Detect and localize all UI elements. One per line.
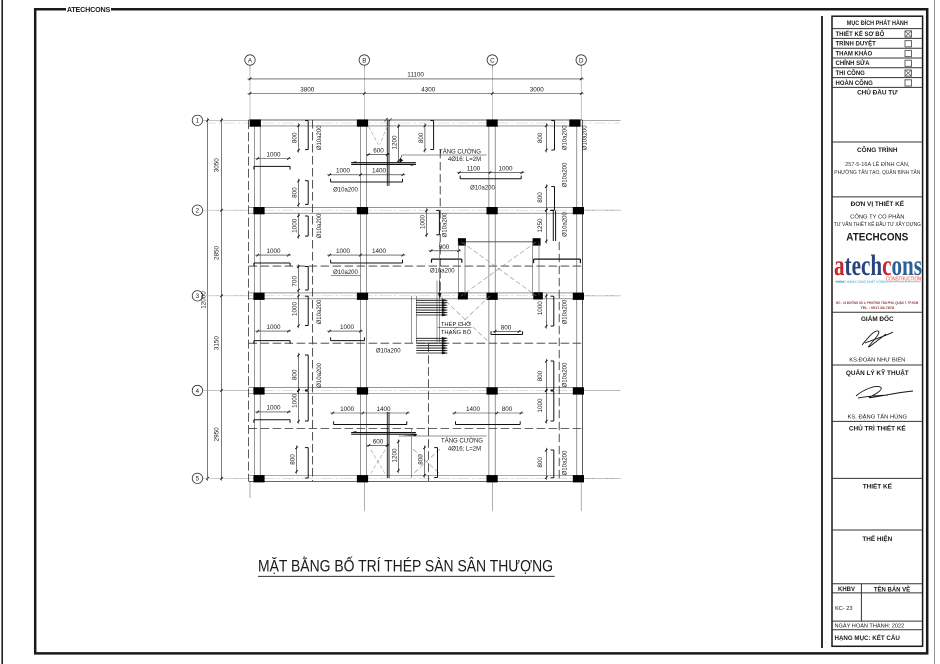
svg-text:Ø10a200: Ø10a200	[563, 125, 569, 150]
svg-text:THAM KHẢO: THAM KHẢO	[836, 50, 873, 57]
svg-text:KS.ĐOÀN NHƯ BIỂN: KS.ĐOÀN NHƯ BIỂN	[849, 357, 905, 364]
svg-text:Ø10a200: Ø10a200	[333, 187, 358, 193]
svg-text:Ø10a200: Ø10a200	[430, 268, 455, 274]
svg-text:800: 800	[292, 187, 299, 198]
svg-text:4Ø16: L=2M: 4Ø16: L=2M	[448, 157, 481, 163]
svg-text:1000: 1000	[537, 301, 544, 316]
svg-text:1400: 1400	[376, 406, 391, 413]
svg-text:TĂNG CƯỜNG: TĂNG CƯỜNG	[441, 437, 483, 444]
svg-text:800: 800	[292, 369, 299, 380]
svg-text:800: 800	[418, 132, 425, 143]
svg-text:D: D	[579, 57, 584, 64]
svg-text:THỂ HIỆN: THỂ HIỆN	[862, 534, 892, 543]
svg-text:800: 800	[290, 454, 297, 465]
svg-text:1: 1	[196, 118, 200, 125]
svg-text:1000: 1000	[292, 218, 299, 233]
svg-text:MẶT BẰNG BỐ TRÍ THÉP SÀN SÂN T: MẶT BẰNG BỐ TRÍ THÉP SÀN SÂN THƯỢNG	[258, 556, 553, 576]
svg-text:Ø10a200: Ø10a200	[376, 349, 401, 355]
svg-text:1000: 1000	[340, 324, 355, 331]
svg-text:3150: 3150	[213, 336, 220, 351]
svg-text:4300: 4300	[421, 86, 436, 93]
svg-text:1000: 1000	[266, 248, 281, 255]
svg-text:TÊN BẢN VẼ: TÊN BẢN VẼ	[874, 586, 910, 594]
svg-text:PHƯỜNG TÂN TẠO, QUẬN BÌNH TÂN: PHƯỜNG TÂN TẠO, QUẬN BÌNH TÂN	[834, 169, 920, 176]
svg-text:700: 700	[292, 276, 299, 287]
svg-text:Ø10a200: Ø10a200	[470, 186, 495, 192]
svg-text:800: 800	[501, 324, 512, 331]
svg-text:2950: 2950	[213, 427, 220, 442]
svg-text:1000: 1000	[537, 398, 544, 413]
svg-text:1000: 1000	[266, 151, 281, 158]
svg-text:800: 800	[502, 406, 513, 413]
svg-text:3800: 3800	[300, 86, 315, 93]
svg-text:Ø10a200: Ø10a200	[563, 362, 569, 387]
svg-text:C: C	[490, 57, 495, 64]
svg-text:KHBV: KHBV	[838, 587, 855, 593]
svg-text:ĐỒNG HÀNH CÙNG KHÁT VỌNG: ĐỒNG HÀNH CÙNG KHÁT VỌNG	[836, 279, 886, 284]
svg-text:1000: 1000	[292, 302, 299, 317]
svg-text:1250: 1250	[537, 218, 544, 233]
svg-text:TEL : 0917.68.7878: TEL : 0917.68.7878	[860, 306, 894, 310]
svg-text:600: 600	[373, 438, 384, 445]
svg-text:1000: 1000	[266, 324, 281, 331]
svg-text:ĐC : 16 ĐƯỜNG SỐ 4, PHƯỜNG TÂN: ĐC : 16 ĐƯỜNG SỐ 4, PHƯỜNG TÂN PHÚ, QUẬN…	[836, 300, 918, 305]
svg-text:12000: 12000	[201, 291, 208, 309]
svg-text:2850: 2850	[213, 246, 220, 261]
svg-text:Ø10a200: Ø10a200	[563, 162, 569, 187]
svg-text:3050: 3050	[213, 158, 220, 173]
svg-text:CONSTRUCTION: CONSTRUCTION	[886, 276, 921, 282]
svg-text:1000: 1000	[292, 393, 299, 408]
svg-text:Ø10a200: Ø10a200	[317, 362, 323, 387]
svg-text:Ø10a200: Ø10a200	[333, 270, 358, 276]
svg-text:QUẢN LÝ KỸ THUẬT: QUẢN LÝ KỸ THUẬT	[846, 368, 909, 377]
svg-text:TRÌNH DUYỆT: TRÌNH DUYỆT	[836, 40, 877, 48]
svg-text:5: 5	[196, 476, 200, 483]
svg-text:1400: 1400	[372, 168, 387, 175]
svg-text:1400: 1400	[372, 248, 387, 255]
svg-text:800: 800	[418, 454, 425, 465]
svg-text:Ø10a200: Ø10a200	[563, 450, 569, 475]
svg-text:4: 4	[196, 388, 200, 395]
svg-text:800: 800	[537, 132, 544, 143]
svg-text:TĂNG CƯỜNG: TĂNG CƯỜNG	[439, 148, 481, 155]
svg-text:TƯ VẤN THIẾT KẾ ĐẦU TƯ XÂY DỰN: TƯ VẤN THIẾT KẾ ĐẦU TƯ XÂY DỰNG	[834, 221, 921, 228]
svg-text:Ø10a200: Ø10a200	[443, 212, 449, 237]
svg-text:800: 800	[537, 370, 544, 381]
svg-text:1200: 1200	[392, 135, 399, 150]
svg-text:1000: 1000	[336, 168, 351, 175]
svg-text:3: 3	[196, 293, 200, 300]
svg-text:Ø10a200: Ø10a200	[317, 125, 323, 150]
svg-text:1000: 1000	[336, 248, 351, 255]
svg-text:800: 800	[537, 457, 544, 468]
svg-text:Ø10a200: Ø10a200	[583, 125, 589, 150]
svg-text:Ø10a200: Ø10a200	[317, 213, 323, 238]
svg-text:11100: 11100	[407, 72, 424, 79]
svg-text:1000: 1000	[340, 406, 355, 413]
svg-text:MỤC ĐÍCH PHÁT HÀNH: MỤC ĐÍCH PHÁT HÀNH	[847, 18, 908, 27]
svg-text:CÔNG TY CỔ PHẦN: CÔNG TY CỔ PHẦN	[850, 214, 904, 221]
svg-text:CHỈNH SỬA: CHỈNH SỬA	[836, 60, 871, 67]
svg-text:Ø10a200: Ø10a200	[317, 299, 323, 324]
svg-text:1200: 1200	[391, 448, 398, 463]
svg-text:257-5-16A LÊ ĐÌNH CẨN,: 257-5-16A LÊ ĐÌNH CẨN,	[845, 160, 910, 168]
svg-text:800: 800	[537, 192, 544, 203]
svg-text:3000: 3000	[530, 86, 545, 93]
svg-text:KC- 23: KC- 23	[835, 606, 852, 612]
svg-text:1400: 1400	[466, 406, 481, 413]
svg-text:THIẾT KẾ SƠ BỘ: THIẾT KẾ SƠ BỘ	[836, 30, 885, 38]
svg-text:1000: 1000	[420, 215, 427, 230]
svg-text:THÉP CHỜ: THÉP CHỜ	[441, 321, 471, 328]
svg-text:CÔNG TRÌNH: CÔNG TRÌNH	[857, 145, 898, 154]
svg-text:4Ø16; L=2M: 4Ø16; L=2M	[448, 446, 481, 452]
svg-text:Ø10a200: Ø10a200	[563, 212, 569, 237]
svg-text:1100: 1100	[467, 165, 481, 172]
svg-text:HOÀN CÔNG: HOÀN CÔNG	[836, 79, 874, 87]
svg-text:600: 600	[373, 148, 384, 155]
svg-text:NGÀY HOÀN THÀNH: 2022: NGÀY HOÀN THÀNH: 2022	[835, 623, 905, 630]
svg-text:B: B	[362, 57, 366, 64]
svg-text:900: 900	[439, 244, 450, 251]
svg-text:800: 800	[292, 132, 299, 143]
svg-text:THI CÔNG: THI CÔNG	[836, 69, 866, 77]
svg-text:ATECHCONS: ATECHCONS	[67, 5, 111, 14]
svg-text:KS. ĐẶNG TẤN HÙNG: KS. ĐẶNG TẤN HÙNG	[848, 413, 908, 420]
svg-text:1000: 1000	[498, 165, 513, 172]
svg-text:HẠNG MỤC: KẾT CẤU: HẠNG MỤC: KẾT CẤU	[835, 635, 901, 642]
svg-text:1000: 1000	[266, 405, 281, 412]
svg-text:2: 2	[196, 208, 200, 215]
svg-text:ATECHCONS: ATECHCONS	[846, 232, 908, 244]
svg-text:Ø10a200: Ø10a200	[563, 299, 569, 324]
svg-text:THANG BỘ: THANG BỘ	[441, 329, 472, 336]
